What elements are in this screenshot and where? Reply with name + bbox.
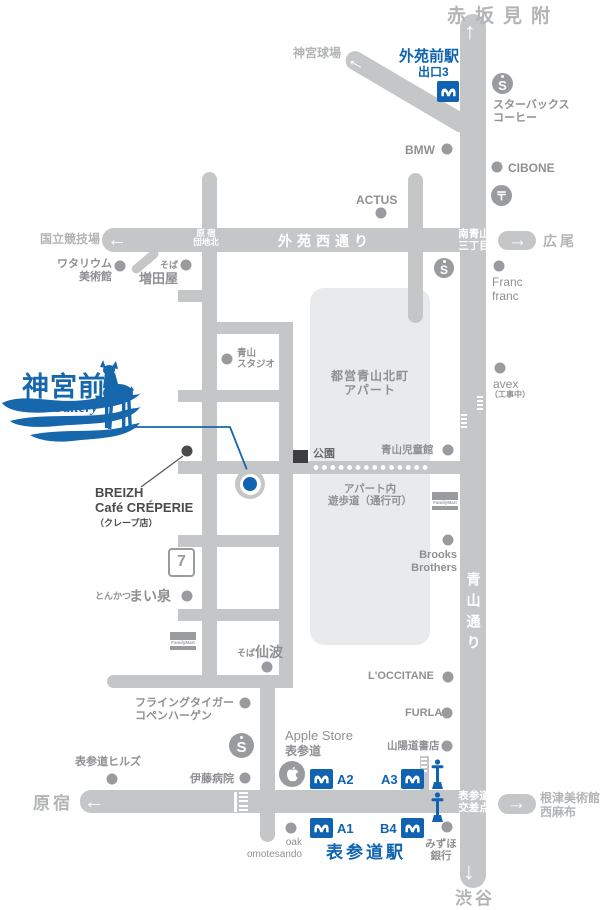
label-breizh-l2: Café CRÉPERIE [95,500,193,515]
poi-dot-maisen [182,591,193,602]
starbucks-icon-2-letter: S [440,263,448,277]
label-loccitane: L'OCCITANE [368,670,434,683]
label-starbucks-l1: スターバックス [493,99,570,112]
label-hills: 表参道ヒルズ [75,756,141,769]
road-label-gaien-nishi: 外苑西通り [278,233,373,250]
starbucks-icon-2-dot [443,260,446,263]
metro-box-a3 [401,769,424,789]
dest-harajuku: 原宿 [33,794,73,814]
label-brooks-l1: Brooks [395,549,457,562]
poi-dot-ito [240,773,251,784]
starbucks-icon-3-letter: S [236,739,246,756]
starbucks-icon-letter: S [498,78,507,93]
label-flying-tiger: フライングタイガー コペンハーゲン [135,697,234,723]
dest-national-stadium: 国立競技場 [40,232,100,246]
gallery-logo-subtitle: Gallery [52,400,98,418]
park-square [293,450,308,463]
label-promenade-l2: 遊歩道（通行可） [318,495,422,507]
familymart-icon-2-bar2 [170,646,196,650]
label-apple-store: Apple Store 表参道 [285,728,353,758]
exit-label-b4: B4 [380,821,397,836]
label-ito-hospital: 伊藤病院 [190,773,234,786]
label-brooks: Brooks Brothers [395,549,457,575]
label-oak: oak omotesando [238,837,302,861]
road-label-kosaten-l1: 表参道 [455,790,493,802]
traffic-signal-icon-2 [430,792,445,823]
label-flying-tiger-l1: フライングタイガー [135,697,234,710]
poi-dot-loccitane [443,672,454,683]
familymart-icon-1-bar2 [432,506,458,510]
starbucks-icon-3-dot [240,736,243,739]
familymart-icon-1-text: FamilyMart [432,500,458,505]
familymart-icon-2-bar [170,632,196,640]
metro-box-b4 [401,818,424,838]
label-aoyama-studio-l2: スタジオ [237,359,275,370]
poi-dot-mizuho [442,822,453,833]
apple-glyph [285,766,300,783]
label-bmw: BMW [405,143,435,157]
station-gaienmae-name: 外苑前駅 [399,48,459,66]
road-label-aoyama-dori: 青山通り [465,572,482,656]
poi-dot-brooks [443,535,454,546]
metro-box-a2 [310,769,333,789]
road-label-minami-aoyama-l1: 南青山 [455,229,493,241]
starbucks-icon-dot [501,75,504,78]
label-starbucks: スターバックス コーヒー [493,99,570,125]
dest-jingu-stadium: 神宮球場 [293,46,341,60]
poi-dot-semba [262,662,273,673]
seven-eleven-icon-7: 7 [177,553,186,572]
label-oak-l1: oak [238,837,302,849]
poi-dot-masudaya [181,260,192,271]
poi-dot-avex [495,363,506,374]
postal-icon: 〒 [491,185,512,206]
exit-label-a3: A3 [381,772,398,787]
label-park: 公園 [313,448,335,461]
label-watarium-l1: ワタリウム [40,258,112,271]
label-actus: ACTUS [356,193,397,207]
poi-dot-cibone [492,162,503,173]
label-promenade: アパート内 遊歩道（通行可） [318,483,422,508]
label-promenade-l1: アパート内 [318,483,422,495]
exit-label-a1: A1 [337,821,354,836]
label-apple-store-l1: Apple Store [285,728,353,743]
label-mizuho-l1: みずほ [421,838,461,850]
familymart-icon-1-bar [432,492,458,500]
label-francfranc-l2: franc [492,289,523,303]
metro-box-a1 [310,818,333,838]
label-starbucks-l2: コーヒー [493,112,570,125]
label-semba-prefix: そば [237,648,255,659]
road-label-kosaten-l2: 交差点 [455,802,493,814]
gallery-location-marker [235,469,265,499]
label-maisen: まい泉 [129,588,171,605]
label-breizh-l3: （クレープ店） [95,518,193,529]
access-map: ↑ ← ← → ← → ↓ 神宮前 Gallery [0,0,600,910]
dest-hiroo: 広尾 [543,233,577,250]
label-apartment-l2: アパート [318,383,422,397]
label-watarium-l2: 美術館 [40,271,112,284]
label-mizuho-l2: 銀行 [421,850,461,862]
poi-dot-francfranc [494,261,505,272]
poi-dot-bmw [442,144,453,155]
poi-dot-breizh [182,446,193,457]
poi-dot-oak [286,823,297,834]
road-label-minami-aoyama-l2: 三丁目 [455,241,493,253]
starbucks-icon: S [492,73,513,94]
traffic-signal-icon-1 [430,759,445,790]
label-breizh-l1: BREIZH [95,485,193,500]
label-watarium: ワタリウム 美術館 [40,258,112,284]
label-sanyodo: 山陽道書店 [387,740,440,752]
label-apartment: 都営青山北町 アパート [318,369,422,397]
station-omotesando-name: 表参道駅 [326,843,406,863]
exit-label-a2: A2 [337,772,354,787]
tokyo-metro-icon [313,822,330,834]
poi-dot-jidokan [443,445,454,456]
label-apple-store-l2: 表参道 [285,744,353,758]
tokyo-metro-icon [440,86,457,98]
label-brooks-l2: Brothers [395,562,457,575]
dest-shibuya: 渋谷 [455,889,495,909]
label-masudaya: 増田屋 [139,271,178,286]
label-apartment-l1: 都営青山北町 [318,369,422,383]
postal-icon-mark: 〒 [495,187,507,204]
road-label-omotesando-kosaten: 表参道 交差点 [455,790,493,814]
apple-icon [279,761,305,787]
starbucks-icon-2: S [434,258,454,278]
label-avex-note: （工事中） [490,390,530,399]
poi-dot-hills [107,774,118,785]
poi-dot-flying-tiger [240,698,251,709]
label-mizuho: みずほ 銀行 [421,838,461,863]
label-francfranc-l1: Franc [492,275,523,289]
label-maisen-prefix: とんかつ [95,591,131,602]
label-jidokan: 青山児童館 [381,444,434,456]
familymart-icon-2-text: FamilyMart [170,640,196,645]
label-cibone: CIBONE [508,161,555,175]
road-label-harajuku-danchi-l2: 団地北 [188,238,224,247]
poi-dot-watarium [115,261,126,272]
label-aoyama-studio: 青山 スタジオ [237,348,275,370]
label-aoyama-studio-l1: 青山 [237,348,275,359]
label-oak-l2: omotesando [238,849,302,861]
seven-eleven-icon: 7 [168,548,195,577]
label-furla: FURLA [405,707,442,720]
station-gaienmae-exit: 出口3 [418,65,449,79]
familymart-icon-1: FamilyMart [432,492,458,510]
dest-nishiazabu: 西麻布 [540,805,576,819]
poi-dot-furla [442,708,453,719]
label-flying-tiger-l2: コペンハーゲン [135,710,234,723]
poi-dot-sanyodo [442,741,453,752]
tokyo-metro-icon [404,773,421,785]
label-masudaya-prefix: そば [160,260,178,271]
dest-nezu-museum: 根津美術館 [540,791,600,805]
dest-akasakamitsuke: 赤坂見附 [447,6,559,28]
tokyo-metro-icon [404,822,421,834]
metro-box-exit3 [437,81,459,102]
label-semba: 仙波 [255,644,283,661]
road-label-minami-aoyama: 南青山 三丁目 [455,229,493,252]
label-breizh: BREIZH Café CRÉPERIE （クレープ店） [95,485,193,528]
poi-dot-actus [376,208,387,219]
label-francfranc: Franc franc [492,275,523,303]
road-label-harajuku-danchi: 原 宿 団地北 [188,229,224,248]
poi-dot-aoyama-studio [222,354,233,365]
starbucks-icon-3: S [229,733,254,758]
tokyo-metro-icon [313,773,330,785]
familymart-icon-2: FamilyMart [170,632,196,650]
